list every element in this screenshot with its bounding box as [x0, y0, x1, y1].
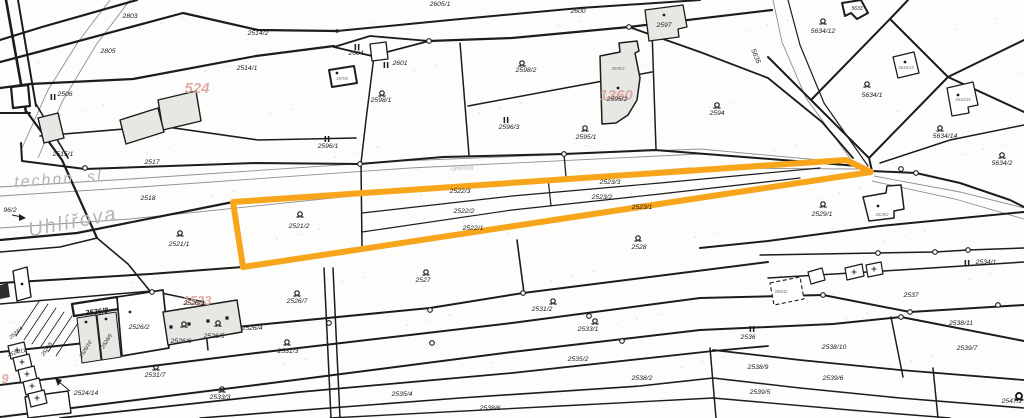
building-dot-icon [187, 322, 190, 325]
landuse-dot-texture [113, 231, 114, 232]
parcel-boundary-line [700, 212, 1024, 248]
landuse-dot-texture [503, 109, 504, 110]
parcel-number-label: 2803 [121, 13, 137, 20]
landuse-dot-texture [691, 113, 692, 114]
landuse-dot-texture [729, 101, 731, 103]
landuse-dot-texture [935, 357, 936, 358]
landuse-dot-texture [680, 366, 682, 368]
street-name-label: Uhlířova [26, 203, 119, 242]
parcel-number-label: 2526/6 [170, 338, 192, 345]
label-arrow-head [19, 214, 26, 221]
parcel-number-label: 2517 [143, 159, 159, 166]
landuse-dot-texture [643, 63, 645, 65]
parcel-number-label: 2523/2 [591, 194, 613, 201]
landuse-dot-texture [471, 367, 473, 369]
building-number-small-label: 5634/15 [955, 97, 971, 102]
parcel-number-label: 2518 [139, 195, 155, 202]
landuse-dot-texture [575, 277, 576, 278]
parcel-boundary-line [460, 43, 469, 155]
landuse-dot-texture [387, 273, 388, 274]
landuse-dot-texture [708, 106, 710, 108]
landuse-dot-texture [773, 149, 775, 151]
parcel-boundary-line [429, 10, 772, 41]
building-number-small-label: 19705 [336, 76, 348, 81]
parcel-number-label: 2600 [569, 8, 585, 15]
landuse-dot-texture [308, 360, 309, 361]
building-number-small-label: 5634/13 [898, 65, 914, 70]
landuse-dot-texture [835, 69, 836, 70]
landuse-dot-texture [322, 230, 323, 231]
landuse-dot-texture [889, 365, 891, 367]
landuse-dot-texture [596, 272, 597, 273]
parcel-number-label: 2598/2 [515, 67, 537, 74]
landuse-symbol-icon [551, 299, 555, 303]
building-number-small-label: 2595/3 [611, 66, 625, 71]
landuse-dot-texture [657, 313, 659, 315]
landuse-dot-texture [798, 146, 799, 147]
parcel-number-label: 2594 [708, 110, 724, 117]
parcel-number-label: 2539/6 [822, 375, 844, 382]
boundary-point-marker [427, 39, 432, 44]
parcel-boundary-line [330, 398, 713, 418]
building-dot-icon [904, 61, 907, 64]
landuse-dot-texture [85, 111, 86, 112]
parcel-number-label: 5634/12 [811, 28, 836, 35]
landuse-dot-texture [859, 187, 861, 189]
landuse-dot-texture [921, 107, 922, 108]
boundary-point-marker [933, 250, 938, 255]
landuse-dot-texture [910, 360, 912, 362]
landuse-dot-texture [30, 316, 32, 318]
landuse-dot-texture [636, 318, 638, 320]
landuse-dot-texture [132, 282, 134, 284]
parcel-boundary-line [24, 304, 48, 340]
parcel-boundary-line [0, 238, 97, 252]
building-footprint [866, 262, 883, 277]
landuse-dot-texture [849, 319, 850, 320]
parcel-boundary-line [0, 13, 337, 62]
landuse-symbol-icon [178, 231, 182, 235]
landuse-dot-texture [928, 232, 929, 233]
landuse-dot-texture [489, 239, 490, 240]
landuse-dot-texture [485, 237, 487, 239]
building-dot-icon [336, 72, 339, 75]
parcel-boundary-line [97, 238, 150, 291]
landuse-dot-texture [996, 18, 998, 20]
landuse-dot-texture [150, 154, 151, 155]
landuse-dot-texture [413, 69, 415, 71]
landuse-dot-texture [979, 25, 980, 26]
landuse-dot-texture [301, 235, 302, 236]
landuse-dot-texture [459, 61, 460, 62]
landuse-dot-texture [561, 27, 562, 28]
parcel-number-label: 2535/2 [567, 356, 589, 363]
landuse-dot-texture [376, 146, 378, 148]
landuse-dot-texture [589, 147, 590, 148]
landuse-dot-texture [924, 230, 926, 232]
building-dot-icon [85, 321, 88, 324]
landuse-dot-texture [269, 113, 271, 115]
street-name-label: technn. sl. [14, 168, 110, 192]
building-number-small-label: 2529/2 [875, 212, 889, 217]
landuse-dot-texture [304, 358, 306, 360]
parcel-boundary-line [40, 312, 64, 348]
parcel-boundary-line [710, 348, 716, 418]
landuse-dot-texture [167, 147, 169, 149]
parcel-number-label: 2506 [56, 91, 72, 98]
landuse-dot-texture [1019, 71, 1021, 73]
meadow-symbol-icon [51, 94, 53, 100]
landuse-dot-texture [352, 28, 353, 29]
landuse-dot-texture [766, 24, 768, 26]
landuse-dot-texture [629, 193, 631, 195]
landuse-dot-texture [961, 153, 963, 155]
landuse-dot-texture [102, 104, 104, 106]
landuse-dot-texture [633, 195, 634, 196]
landuse-dot-texture [907, 237, 908, 238]
parcel-number-label: 2538/11 [948, 320, 973, 327]
building-footprint [117, 290, 169, 356]
landuse-symbol-icon [715, 103, 719, 107]
landuse-dot-texture [647, 65, 648, 66]
landuse-dot-texture [181, 17, 183, 19]
landuse-dot-texture [229, 67, 230, 68]
landuse-dot-texture [64, 116, 65, 117]
parcel-number-label: 5634/1 [862, 92, 883, 99]
parcel-number-label: 2527 [414, 277, 430, 284]
meadow-symbol-icon [507, 117, 509, 123]
landuse-dot-texture [578, 20, 580, 22]
landuse-dot-texture [157, 279, 158, 280]
building-dot-icon [206, 319, 209, 322]
parcel-number-label: 2524/14 [73, 390, 99, 397]
boundary-point-marker [876, 251, 881, 256]
parcel-number-label: 5634/14 [933, 133, 958, 140]
parcel-number-label: 2526/4 [241, 325, 263, 332]
building-dot-icon [105, 318, 108, 321]
landuse-dot-texture [817, 197, 819, 199]
selected-parcel-outline[interactable] [233, 160, 871, 267]
landuse-dot-texture [705, 363, 706, 364]
landuse-dot-texture [726, 358, 727, 359]
meadow-symbol-icon [328, 136, 330, 142]
building-footprint [120, 108, 164, 144]
building-dot-icon [957, 94, 960, 97]
landuse-symbol-icon [424, 270, 428, 274]
parcel-number-label: 2539/5 [749, 389, 771, 396]
parcel-number-label: 5634/2 [992, 160, 1013, 167]
boundary-point-marker [335, 29, 339, 33]
parcel-number-label: 2526/7 [286, 298, 308, 305]
landuse-dot-texture [318, 228, 320, 230]
parcel-boundary-line [60, 346, 768, 418]
landuse-dot-texture [448, 314, 450, 316]
landuse-symbol-icon [285, 340, 289, 344]
landuse-dot-texture [410, 326, 411, 327]
building-footprint [808, 268, 825, 284]
parcel-number-label: 2595/1 [575, 134, 597, 141]
boundary-point-marker [620, 339, 625, 344]
landuse-dot-texture [146, 152, 148, 154]
building-footprint [38, 113, 64, 143]
landuse-dot-texture [749, 31, 750, 32]
parcel-number-label: 5633 [851, 6, 862, 12]
boundary-point-marker [562, 152, 567, 157]
parcel-boundary-line [890, 0, 908, 19]
parcel-number-label: 2524/4 [8, 326, 25, 342]
building-dot-icon [663, 14, 666, 17]
building-footprint [600, 41, 640, 124]
landuse-symbol-icon [821, 202, 825, 206]
landuse-dot-texture [524, 104, 525, 105]
landuse-dot-texture [654, 190, 655, 191]
landuse-dot-texture [424, 196, 425, 197]
landuse-dot-texture [67, 239, 69, 241]
parcel-number-label: 2524/5 [40, 341, 55, 358]
landuse-symbol-icon [821, 19, 825, 23]
landuse-dot-texture [20, 68, 21, 69]
cadastral-map-canvas[interactable]: 524136015339technn. sl.UhlířovaUhlířova2… [0, 0, 1024, 418]
landuse-dot-texture [863, 189, 864, 190]
landuse-dot-texture [993, 275, 994, 276]
parcel-number-label: 2596/1 [317, 143, 339, 150]
landuse-dot-texture [719, 233, 720, 234]
landuse-dot-texture [348, 26, 350, 28]
parcel-boundary-line [40, 126, 356, 140]
landuse-dot-texture [615, 323, 617, 325]
boundary-point-marker [358, 162, 363, 167]
parcel-number-label: 2538/10 [821, 344, 847, 351]
landuse-dot-texture [60, 114, 62, 116]
landuse-dot-texture [2, 196, 4, 198]
meadow-symbol-icon [750, 326, 752, 332]
landuse-dot-texture [780, 274, 782, 276]
parcel-boundary-line [891, 317, 903, 377]
landuse-symbol-icon [298, 212, 302, 216]
landuse-dot-texture [903, 235, 905, 237]
meadow-symbol-icon [54, 94, 56, 100]
landuse-symbol-icon [295, 291, 299, 295]
landuse-dot-texture [931, 355, 933, 357]
parcel-number-label: 2523/3 [599, 179, 621, 186]
parcel-number-label: 2539/7 [956, 345, 978, 352]
landuse-dot-texture [434, 64, 436, 66]
landuse-symbol-icon [593, 319, 597, 323]
parcel-number-label: 2597 [655, 22, 671, 29]
landuse-dot-texture [160, 22, 162, 24]
landuse-symbol-icon [865, 82, 869, 86]
landuse-dot-texture [417, 71, 418, 72]
landuse-dot-texture [482, 114, 483, 115]
parcel-boundary-line [713, 398, 950, 418]
landuse-dot-texture [791, 21, 792, 22]
parcel-number-label: 2598/1 [370, 97, 392, 104]
landuse-dot-texture [756, 156, 757, 157]
landuse-dot-texture [513, 357, 515, 359]
landuse-dot-texture [383, 271, 385, 273]
landuse-dot-texture [225, 65, 227, 67]
landuse-symbol-icon [380, 91, 384, 95]
parcel-number-label: 2601 [391, 60, 407, 67]
parcel-boundary-line [0, 46, 334, 88]
landuse-dot-texture [475, 369, 476, 370]
landuse-dot-texture [694, 236, 696, 238]
landuse-dot-texture [715, 231, 717, 233]
landuse-dot-texture [968, 278, 970, 280]
parcel-number-label: 2595/2 [606, 96, 628, 103]
building-dot-icon [169, 325, 172, 328]
landuse-dot-texture [896, 110, 898, 112]
landuse-dot-texture [338, 158, 339, 159]
parcel-boundary-line [0, 267, 243, 283]
parcel-number-label: 2537 [902, 292, 918, 299]
landuse-dot-texture [139, 27, 141, 29]
meadow-symbol-icon [753, 326, 755, 332]
landuse-symbol-icon [583, 126, 587, 130]
parcel-number-label: 2526/3 [183, 300, 205, 307]
boundary-point-marker [327, 321, 332, 326]
parcel-number-label: 2605/1 [429, 1, 451, 8]
parcel-number-label: 2805 [99, 48, 115, 55]
meadow-symbol-icon [325, 136, 327, 142]
landuse-dot-texture [571, 275, 573, 277]
landuse-dot-texture [763, 281, 764, 282]
landuse-dot-texture [215, 197, 216, 198]
parcel-boundary-line [56, 320, 80, 356]
meadow-symbol-icon [965, 260, 967, 266]
building-footprint [0, 283, 10, 299]
landuse-dot-texture [290, 108, 292, 110]
landuse-dot-texture [78, 366, 79, 367]
landuse-dot-texture [92, 236, 93, 237]
parcel-boundary-line [652, 30, 656, 149]
landuse-dot-texture [178, 274, 179, 275]
landuse-dot-texture [1003, 143, 1005, 145]
building-number-label: 524 [184, 80, 210, 97]
landuse-dot-texture [499, 107, 501, 109]
landuse-dot-texture [406, 324, 408, 326]
landuse-dot-texture [445, 191, 446, 192]
parcel-number-label: 2535/4 [391, 391, 413, 398]
landuse-dot-texture [914, 362, 915, 363]
landuse-dot-texture [777, 151, 778, 152]
parcel-number-label: 2538/2 [631, 375, 653, 382]
landuse-dot-texture [842, 194, 843, 195]
landuse-dot-texture [965, 155, 966, 156]
landuse-dot-texture [427, 319, 429, 321]
meadow-symbol-icon [968, 260, 970, 266]
landuse-symbol-icon [636, 236, 640, 240]
landuse-dot-texture [886, 242, 887, 243]
parcel-number-label: 2533/3 [209, 394, 231, 401]
street-name-label: Uhlířova [451, 165, 474, 172]
building-dot-icon [129, 311, 132, 314]
landuse-dot-texture [362, 276, 364, 278]
parcel-boundary-line [324, 268, 331, 418]
building-dot-icon [877, 205, 880, 208]
meadow-symbol-icon [384, 62, 386, 68]
boundary-point-marker [521, 291, 526, 296]
landuse-dot-texture [972, 280, 973, 281]
map-viewport[interactable]: 524136015339technn. sl.UhlířovaUhlířova2… [0, 0, 1024, 418]
landuse-dot-texture [592, 270, 594, 272]
landuse-dot-texture [311, 103, 313, 105]
landuse-dot-texture [640, 320, 641, 321]
landuse-dot-texture [232, 190, 234, 192]
landuse-dot-texture [698, 238, 699, 239]
parcel-number-label: 2522/1 [462, 225, 484, 232]
landuse-dot-texture [838, 192, 840, 194]
landuse-dot-texture [684, 368, 685, 369]
landuse-dot-texture [287, 365, 288, 366]
landuse-dot-texture [455, 59, 457, 61]
landuse-dot-texture [506, 232, 508, 234]
parcel-number-label: 2522/2 [453, 208, 475, 215]
landuse-dot-texture [1000, 20, 1001, 21]
parcel-boundary-line [811, 19, 948, 158]
landuse-dot-texture [276, 238, 278, 240]
landuse-dot-texture [171, 149, 172, 150]
landuse-dot-texture [619, 325, 620, 326]
parcel-number-label: 2531/2 [531, 306, 553, 313]
landuse-dot-texture [893, 367, 894, 368]
landuse-dot-texture [845, 317, 847, 319]
parcel-number-label: 96/2 [3, 207, 16, 214]
landuse-dot-texture [821, 199, 822, 200]
landuse-dot-texture [23, 191, 25, 193]
parcel-number-label: 2596/3 [498, 124, 520, 131]
landuse-dot-texture [283, 363, 285, 365]
landuse-dot-texture [989, 273, 991, 275]
landuse-dot-texture [787, 19, 789, 21]
landuse-dot-texture [380, 148, 381, 149]
parcel-number-label: 2547/2 [1001, 398, 1023, 405]
label-arrow-head [55, 378, 62, 386]
parcel-number-label: 2604 [347, 50, 363, 57]
boundary-point-marker [899, 167, 904, 172]
landuse-dot-texture [852, 62, 854, 64]
landuse-dot-texture [243, 317, 244, 318]
landuse-dot-texture [294, 110, 295, 111]
landuse-dot-texture [246, 60, 248, 62]
parcel-number-label: 2534/1 [975, 259, 997, 266]
landuse-dot-texture [153, 277, 155, 279]
boundary-point-marker [966, 248, 971, 253]
building-footprint [370, 42, 388, 61]
parcel-number-label: 2526/5 [203, 333, 225, 340]
parcel-boundary-line [948, 40, 1024, 77]
landuse-dot-texture [373, 23, 374, 24]
landuse-dot-texture [520, 102, 522, 104]
parcel-boundary-line [361, 56, 374, 248]
landuse-dot-texture [986, 150, 987, 151]
landuse-dot-texture [517, 359, 518, 360]
landuse-dot-texture [547, 157, 548, 158]
boundary-point-marker [430, 341, 435, 346]
boundary-point-marker [627, 25, 632, 30]
landuse-dot-texture [882, 240, 884, 242]
parcel-number-label: 2536 [739, 334, 755, 341]
landuse-dot-texture [369, 21, 371, 23]
landuse-dot-texture [109, 229, 111, 231]
landuse-dot-texture [37, 61, 39, 63]
landuse-dot-texture [496, 364, 497, 365]
building-number-label: 9 [1, 371, 9, 386]
parcel-number-label: 2529/1 [811, 211, 833, 218]
landuse-dot-texture [582, 22, 583, 23]
parcel-number-label: 2526/2 [128, 324, 150, 331]
boundary-point-marker [587, 314, 592, 319]
